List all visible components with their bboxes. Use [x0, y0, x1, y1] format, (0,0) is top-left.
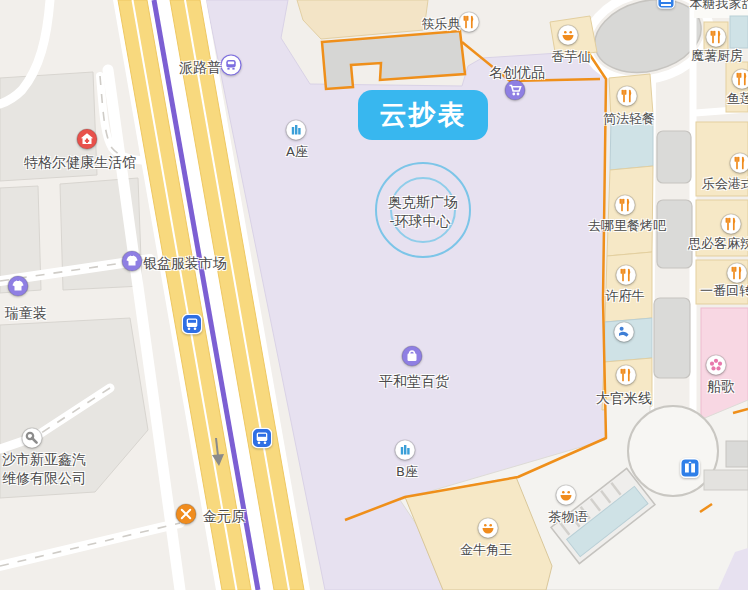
poi-label[interactable]: 去哪里餐烤吧	[588, 219, 666, 234]
flower-icon[interactable]	[705, 354, 727, 380]
clothing-icon[interactable]	[7, 275, 29, 301]
building-icon[interactable]	[394, 439, 416, 465]
poi-label[interactable]: 维修有限公司	[2, 469, 86, 485]
restaurant-icon[interactable]	[729, 152, 748, 178]
gray-blocks	[654, 131, 692, 378]
poi-label[interactable]: 思必客麻辣烫	[688, 237, 748, 252]
poi-label[interactable]: 金元原	[203, 508, 245, 524]
poi-label[interactable]: 船歌	[707, 378, 735, 394]
poi-label[interactable]: 本糖我家甜	[690, 0, 748, 11]
bus-icon[interactable]	[182, 314, 203, 339]
shopping-bag-icon[interactable]	[401, 345, 423, 371]
spa-icon[interactable]	[613, 321, 635, 347]
restaurant-icon[interactable]	[616, 85, 638, 111]
poi-label[interactable]: 筷乐典	[422, 17, 461, 32]
poi-label[interactable]: 魔薯厨房	[691, 49, 743, 64]
dessert-icon[interactable]	[477, 517, 499, 543]
center-place-name-line1: 奥克斯广场	[388, 194, 458, 212]
poi-label[interactable]: B座	[396, 465, 418, 480]
poi-label[interactable]: 香芋仙	[552, 50, 591, 65]
map-canvas[interactable]: 派路普 特格尔健康生活馆 银盆服装市场 瑞童装 沙市新亚鑫汽维修有限公司 金元原…	[0, 0, 748, 590]
restaurant-icon[interactable]	[614, 194, 636, 220]
center-place-name-line2: -环球中心	[389, 213, 450, 231]
poi-label[interactable]: 平和堂百货	[379, 373, 449, 389]
poi-label[interactable]: 名创优品	[489, 64, 545, 80]
poi-label[interactable]: 鱼莲	[727, 92, 748, 107]
restaurant-icon[interactable]	[458, 11, 480, 37]
clothing-icon[interactable]	[121, 250, 143, 276]
dessert-icon[interactable]	[555, 484, 577, 510]
poi-blue-icon[interactable]	[657, 0, 675, 13]
repair-icon[interactable]	[21, 427, 43, 453]
poi-label[interactable]: 派路普	[179, 59, 221, 75]
poi-label[interactable]: 茶物语	[549, 510, 588, 525]
dessert-icon[interactable]	[557, 24, 579, 50]
shopping-cart-icon[interactable]	[504, 79, 526, 105]
bus-icon[interactable]	[252, 428, 273, 453]
elevator-icon[interactable]	[680, 458, 700, 482]
crossed-utensils-icon[interactable]	[175, 503, 197, 529]
poi-label[interactable]: 特格尔健康生活馆	[24, 154, 136, 170]
poi-label[interactable]: 金牛角王	[460, 543, 512, 558]
restaurant-icon[interactable]	[615, 364, 637, 390]
poi-label[interactable]: 瑞童装	[5, 305, 47, 321]
selected-poi-bubble[interactable]: 云抄表	[358, 90, 488, 140]
poi-label[interactable]: 乐会港式	[702, 177, 748, 192]
poi-label[interactable]: A座	[286, 145, 308, 160]
poi-label[interactable]: 一番回转	[700, 284, 748, 299]
poi-label[interactable]: 简法轻餐	[603, 112, 655, 127]
poi-label[interactable]: 许府牛	[606, 289, 645, 304]
poi-label[interactable]: 银盆服装市场	[143, 255, 227, 271]
metro-icon[interactable]	[220, 54, 242, 80]
health-icon[interactable]	[76, 128, 98, 154]
poi-label[interactable]: 大官米线	[596, 390, 652, 406]
building-icon[interactable]	[285, 119, 307, 145]
restaurant-icon[interactable]	[615, 264, 637, 290]
poi-label[interactable]: 沙市新亚鑫汽	[2, 450, 86, 466]
